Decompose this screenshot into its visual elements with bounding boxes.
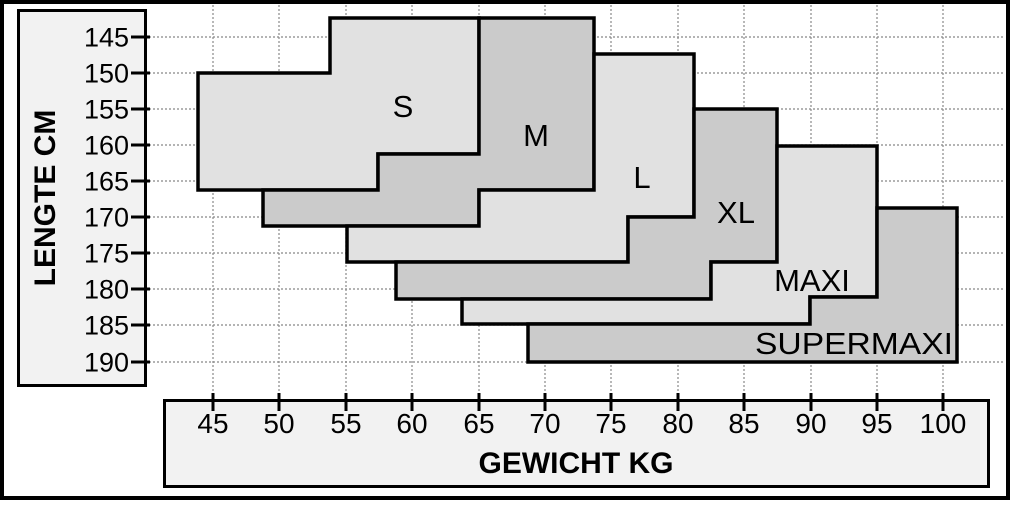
y-tick-label-155: 155 xyxy=(84,95,129,125)
y-tick-label-185: 185 xyxy=(84,311,129,341)
y-tick-label-170: 170 xyxy=(84,203,129,233)
y-tick-label-150: 150 xyxy=(84,59,129,89)
region-label-S: S xyxy=(393,89,414,124)
region-label-SUPERMAXI: SUPERMAXI xyxy=(755,326,953,361)
y-tick-label-165: 165 xyxy=(84,167,129,197)
region-label-M: M xyxy=(523,118,549,153)
x-tick-label-45: 45 xyxy=(197,408,228,439)
x-tick-label-100: 100 xyxy=(920,408,967,439)
x-tick-label-65: 65 xyxy=(463,408,494,439)
x-tick-label-90: 90 xyxy=(795,408,826,439)
region-label-MAXI: MAXI xyxy=(774,263,850,298)
size-chart: SMLXLMAXISUPERMAXI 145150155160165170175… xyxy=(0,0,1010,500)
y-tick-label-190: 190 xyxy=(84,348,129,378)
region-label-L: L xyxy=(633,160,650,195)
y-tick-label-145: 145 xyxy=(84,23,129,53)
x-tick-label-70: 70 xyxy=(529,408,560,439)
x-axis-title: GEWICHT KG xyxy=(479,447,674,480)
x-tick-label-95: 95 xyxy=(861,408,892,439)
x-tick-label-50: 50 xyxy=(263,408,294,439)
size-chart-svg: SMLXLMAXISUPERMAXI 145150155160165170175… xyxy=(0,0,1010,500)
x-tick-label-75: 75 xyxy=(595,408,626,439)
y-axis-title: LENGTE CM xyxy=(29,110,62,287)
x-tick-label-60: 60 xyxy=(396,408,427,439)
y-tick-label-175: 175 xyxy=(84,239,129,269)
y-tick-label-160: 160 xyxy=(84,131,129,161)
x-tick-label-80: 80 xyxy=(662,408,693,439)
x-tick-label-55: 55 xyxy=(330,408,361,439)
region-label-XL: XL xyxy=(717,195,755,230)
y-tick-label-180: 180 xyxy=(84,275,129,305)
x-tick-label-85: 85 xyxy=(728,408,759,439)
